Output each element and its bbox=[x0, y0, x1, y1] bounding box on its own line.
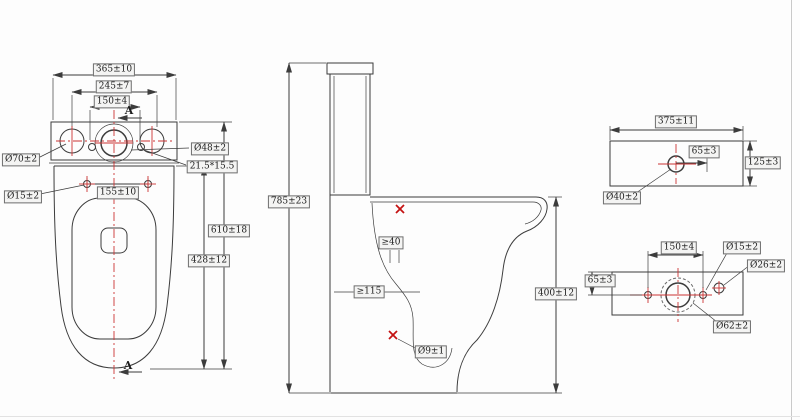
dim-hole-span-outer: 245±7 bbox=[96, 80, 132, 93]
plan-centerlines bbox=[56, 110, 172, 382]
cistern-lid bbox=[327, 63, 373, 74]
seat-inner-line bbox=[370, 202, 541, 224]
cistern-body bbox=[330, 74, 370, 195]
dim-overall-depth: 610±18 bbox=[208, 224, 250, 237]
seat-slot-left bbox=[89, 144, 96, 151]
photo-edge-bottom bbox=[0, 416, 800, 417]
dim-valve-hole: Ø62±2 bbox=[713, 320, 751, 333]
dim-lid-depth: 125±3 bbox=[745, 156, 781, 169]
inspection-mark-upper bbox=[396, 205, 404, 213]
plan-dimension-lines bbox=[53, 75, 232, 369]
dim-button-hole: Ø40±2 bbox=[603, 191, 641, 204]
side-view-linework bbox=[289, 63, 562, 393]
photo-edge-right bbox=[791, 0, 792, 420]
dim-spud-hole: Ø70±2 bbox=[2, 153, 40, 166]
dim-bowl-height: 400±12 bbox=[535, 287, 577, 300]
dim-water-seal: ≥115 bbox=[354, 285, 385, 298]
dim-overall-width: 365±10 bbox=[93, 63, 135, 76]
dim-back-hole-spacing: 150±4 bbox=[661, 241, 697, 254]
dim-fixing-hole: Ø15±2 bbox=[4, 190, 42, 203]
dim-bowl-depth: 428±12 bbox=[188, 254, 230, 267]
back-centerlines bbox=[630, 268, 726, 322]
dim-inlet-hole: Ø26±2 bbox=[747, 259, 785, 272]
dim-fixing-spacing: 155±10 bbox=[97, 186, 139, 199]
dim-lid-width: 375±11 bbox=[655, 115, 697, 128]
dim-overall-height: 785±23 bbox=[268, 195, 310, 208]
dim-back-hole-offset: 65±3 bbox=[585, 274, 616, 287]
dim-flush-hole: Ø48±2 bbox=[191, 142, 229, 155]
section-label-bottom: A bbox=[122, 359, 135, 373]
inspection-mark-lower bbox=[389, 331, 397, 339]
dim-rim-channel: ≥40 bbox=[379, 236, 404, 249]
lid-view-linework bbox=[610, 126, 757, 193]
drawing-sheet: 365±10 245±7 150±4 A Ø70±2 Ø15±2 Ø48±2 2… bbox=[0, 0, 800, 420]
tank-back-outline bbox=[612, 272, 743, 315]
dim-seat-slot: 21.5*15.5 bbox=[187, 160, 238, 173]
dim-lid-hole-offset: 65±3 bbox=[689, 145, 720, 158]
dim-back-side-hole: Ø15±2 bbox=[723, 241, 761, 254]
dim-outlet-hole: Ø9±1 bbox=[415, 345, 447, 358]
plan-view-linework bbox=[38, 75, 232, 382]
section-label-top: A bbox=[123, 104, 136, 118]
leader-button-hole bbox=[636, 169, 671, 193]
back-leaders bbox=[693, 253, 750, 322]
